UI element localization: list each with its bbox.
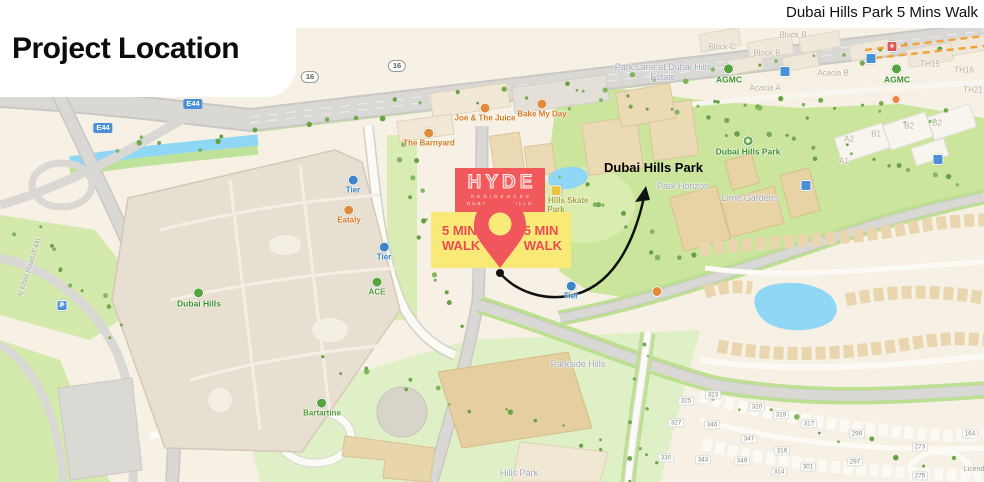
title-panel: Project Location <box>0 0 296 97</box>
page-title: Project Location <box>12 32 239 66</box>
tank-building <box>377 387 427 437</box>
slide: 1616E44E44TierEatalyTierACEThe BarnyardJ… <box>0 0 984 482</box>
hyde-logo-text: HYDE <box>468 173 537 192</box>
park-callout: Dubai Hills Park <box>604 160 703 175</box>
location-pin-icon <box>469 194 531 274</box>
top-caption: Dubai Hills Park 5 Mins Walk <box>786 4 978 21</box>
